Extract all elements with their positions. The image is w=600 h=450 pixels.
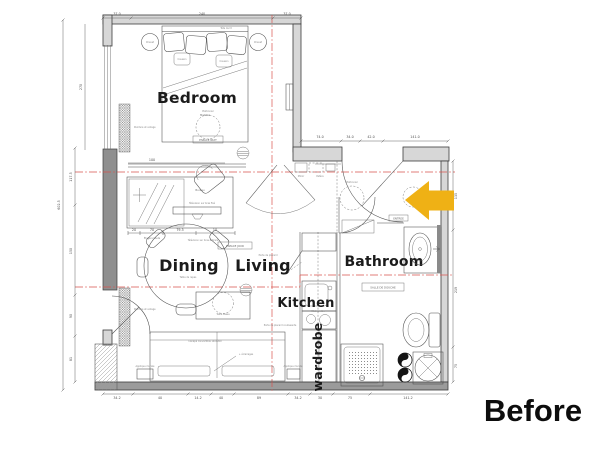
dim-label: 219 <box>454 287 458 293</box>
dim-label: 81 <box>69 357 73 361</box>
dim-label: 30 <box>318 396 322 400</box>
kitchen-label: Kitchen <box>277 296 334 311</box>
dim-label: 90 <box>69 314 73 318</box>
dim-label: 117.5 <box>69 172 73 181</box>
entry-hall: Miroir Patère Plafonnier ENTREE <box>295 161 423 222</box>
etagere-label: Étagère haute <box>144 237 161 240</box>
floorplan-page: Tête de lit Coussin Coussin Matelas Chev… <box>0 0 600 450</box>
dim-console: 79.5 <box>176 228 183 232</box>
dim-label: 270 <box>79 84 83 90</box>
living-label: Living <box>235 256 291 275</box>
eclairages-label: + éclairages <box>239 353 254 356</box>
miroir-label: Miroir <box>298 175 305 178</box>
entry-door-arc <box>342 161 403 222</box>
entree-label: ENTREE <box>393 217 404 221</box>
sofa: Canapé convertible 140x200 + éclairages <box>150 332 285 381</box>
dim-label: 75 <box>348 396 352 400</box>
balcony-door <box>112 296 150 334</box>
dim-console-top: 100 <box>149 158 155 162</box>
section-markers <box>398 353 412 382</box>
kitchenette-label: Kitchenette <box>311 310 325 313</box>
nightstand-left: Chevet <box>142 34 159 51</box>
hall-ceiling-light <box>340 186 364 210</box>
table-repas-label: Table de repas <box>180 276 197 279</box>
coffee-table: Table basse <box>196 292 250 319</box>
before-caption: Before <box>484 393 582 428</box>
peinture-label: Peinture et voilage <box>134 308 156 311</box>
dim-label: 75 <box>454 364 458 368</box>
dim-label: 74.0 <box>316 135 323 139</box>
plafonnier-label: Plafonnier <box>202 110 214 113</box>
plafonnier-label: Plafonnier <box>346 181 358 184</box>
dressing-console: Bureau Télévision sur bras fixé 100 20 7… <box>127 158 235 242</box>
espace-jour-label: ESPACE JOUR <box>226 244 244 248</box>
washing-machine <box>413 352 443 384</box>
matelas-label: Matelas <box>200 113 211 117</box>
red-axis-lines <box>75 15 455 392</box>
patere-label: Patère <box>316 175 324 178</box>
left-corner-hatch <box>95 344 117 390</box>
left-wall-solid <box>103 149 117 290</box>
applique-label: Applique murale <box>136 365 156 368</box>
dim-label: 40 <box>158 396 162 400</box>
bathroom-label: Bathroom <box>344 254 423 270</box>
dim-label: 37.0 <box>283 12 290 16</box>
dim-label: 141.0 <box>410 135 419 139</box>
chevet-label: Chevet <box>146 41 154 44</box>
dim-label: 135 <box>454 193 458 199</box>
porte-placard-coul-label: Porte de placard coulissante <box>264 324 297 327</box>
dim-label: 37.0 <box>113 12 120 16</box>
ceiling-lamp-symbol <box>237 147 249 159</box>
dim-label: 89 <box>257 396 261 400</box>
chevet-label: Chevet <box>254 41 262 44</box>
dimension-upper-right: 74.0 34.0 42.0 141.0 <box>300 135 450 143</box>
dim-label: 34.0 <box>346 135 353 139</box>
dimension-left: 602.5 270 117.5 150 90 81 <box>57 19 85 392</box>
porte-placard-label: Porte de placard <box>259 254 278 257</box>
tete-de-lit-label: Tête de lit <box>220 27 231 30</box>
salle-de-douche-label: SALLE DE DOUCHE <box>370 286 396 290</box>
dim-label: 42.0 <box>367 135 374 139</box>
peinture-label: Peinture et voilage <box>134 126 156 129</box>
dim-label: 150 <box>69 248 73 254</box>
dim-console: 70 <box>150 228 154 232</box>
canape-label: Canapé convertible 140x200 <box>188 340 222 343</box>
entry-door-leaf <box>362 161 403 206</box>
curtain-hatch-top <box>119 104 130 152</box>
floorplan-drawing: Tête de lit Coussin Coussin Matelas Chev… <box>0 0 600 450</box>
applique-label: Applique murale <box>284 365 304 368</box>
espace-nuit-label: ESPACE NUIT <box>199 138 217 142</box>
dining-living: Dining Living Table de repas ESPACE JOUR… <box>134 147 303 381</box>
bedroom: Tête de lit Coussin Coussin Matelas Chev… <box>134 26 293 143</box>
bottom-wall <box>95 382 448 390</box>
dim-label: 240 <box>199 12 205 16</box>
wardrobe-label: wardrobe <box>310 323 325 392</box>
coussin-label: Coussin <box>178 58 187 61</box>
dim-console: 20 <box>132 228 136 232</box>
table-basse-label: Table basse <box>216 313 230 316</box>
bedroom-label: Bedroom <box>157 89 237 107</box>
dim-label: 34.2 <box>294 396 301 400</box>
dining-label: Dining <box>159 256 219 275</box>
toilet <box>403 313 440 347</box>
dim-label: 602.5 <box>57 200 61 209</box>
shower <box>341 344 383 386</box>
coussin-label: Coussin <box>220 60 229 63</box>
bedroom-window <box>105 45 111 149</box>
dim-label: 40 <box>219 396 223 400</box>
wall-light-right: Applique murale <box>284 365 304 379</box>
dim-label: 34.2 <box>113 396 120 400</box>
nightstand-right: Chevet <box>250 34 267 51</box>
tv-fixe-label: Télévision sur bras fixé <box>189 202 216 205</box>
wall-light-left: Applique murale <box>136 365 156 379</box>
bathroom-door-arc <box>339 197 375 233</box>
dimension-bottom: 34.2 40 14.2 40 89 34.2 30 75 141.2 <box>102 393 450 401</box>
bathroom: Bathroom SALLE DE DOUCHE <box>339 197 443 386</box>
tv-articule-label: Télévision sur bras articulé <box>188 239 219 242</box>
dim-label: 141.2 <box>403 396 412 400</box>
dim-label: 14.2 <box>194 396 201 400</box>
bed: Tête de lit Coussin Coussin Matelas <box>162 26 248 142</box>
